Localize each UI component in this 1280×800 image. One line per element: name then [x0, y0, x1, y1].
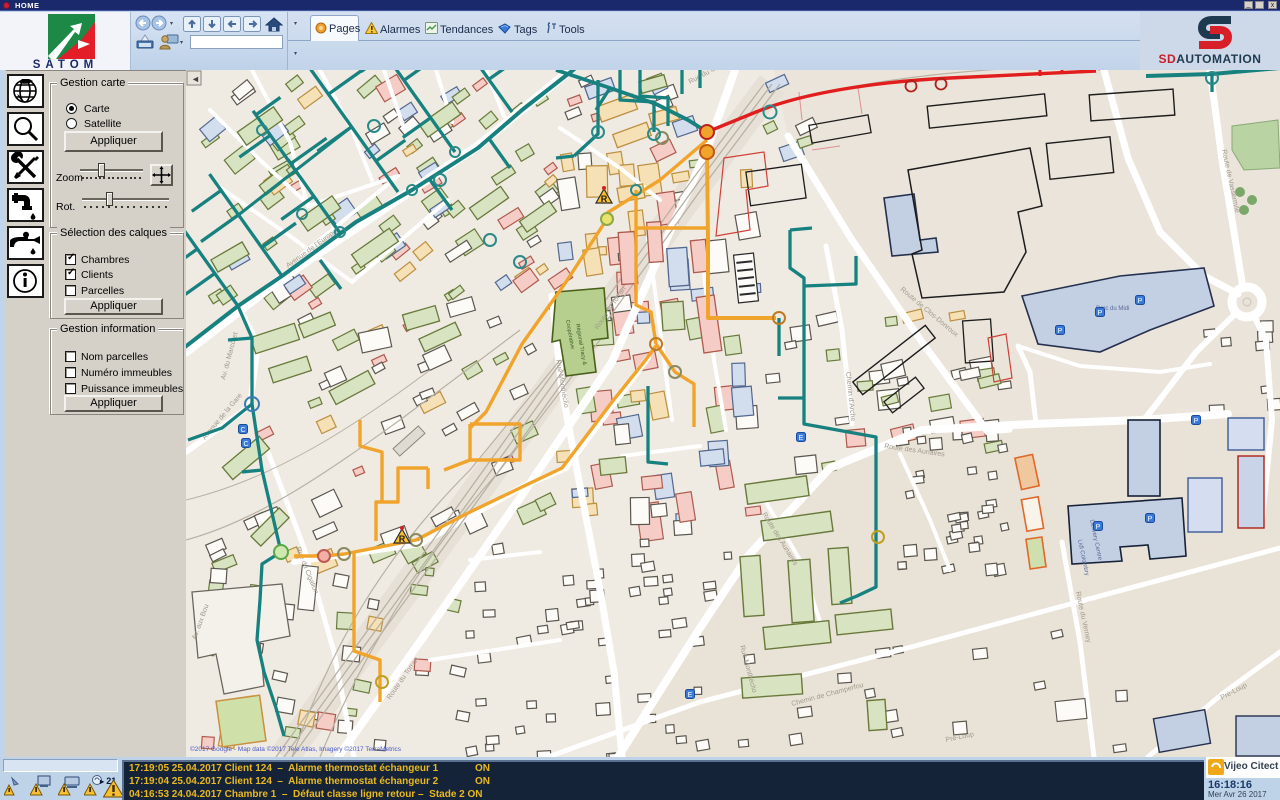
svg-text:E: E	[688, 692, 693, 699]
svg-text:E: E	[799, 435, 804, 442]
svg-text:C: C	[240, 427, 245, 434]
svg-text:C: C	[243, 441, 248, 448]
svg-text:R: R	[399, 534, 406, 544]
svg-text:P: P	[1096, 524, 1101, 531]
svg-text:◄: ◄	[191, 74, 200, 84]
svg-text:P: P	[1148, 516, 1153, 523]
svg-text:P: P	[1194, 418, 1199, 425]
svg-text:P: P	[1098, 310, 1103, 317]
svg-text:©2017 Google - Map data ©2017: ©2017 Google - Map data ©2017 Tele Atlas…	[190, 745, 402, 753]
svg-text:P: P	[1058, 328, 1063, 335]
svg-text:R: R	[601, 194, 608, 204]
svg-text:P: P	[1138, 298, 1143, 305]
